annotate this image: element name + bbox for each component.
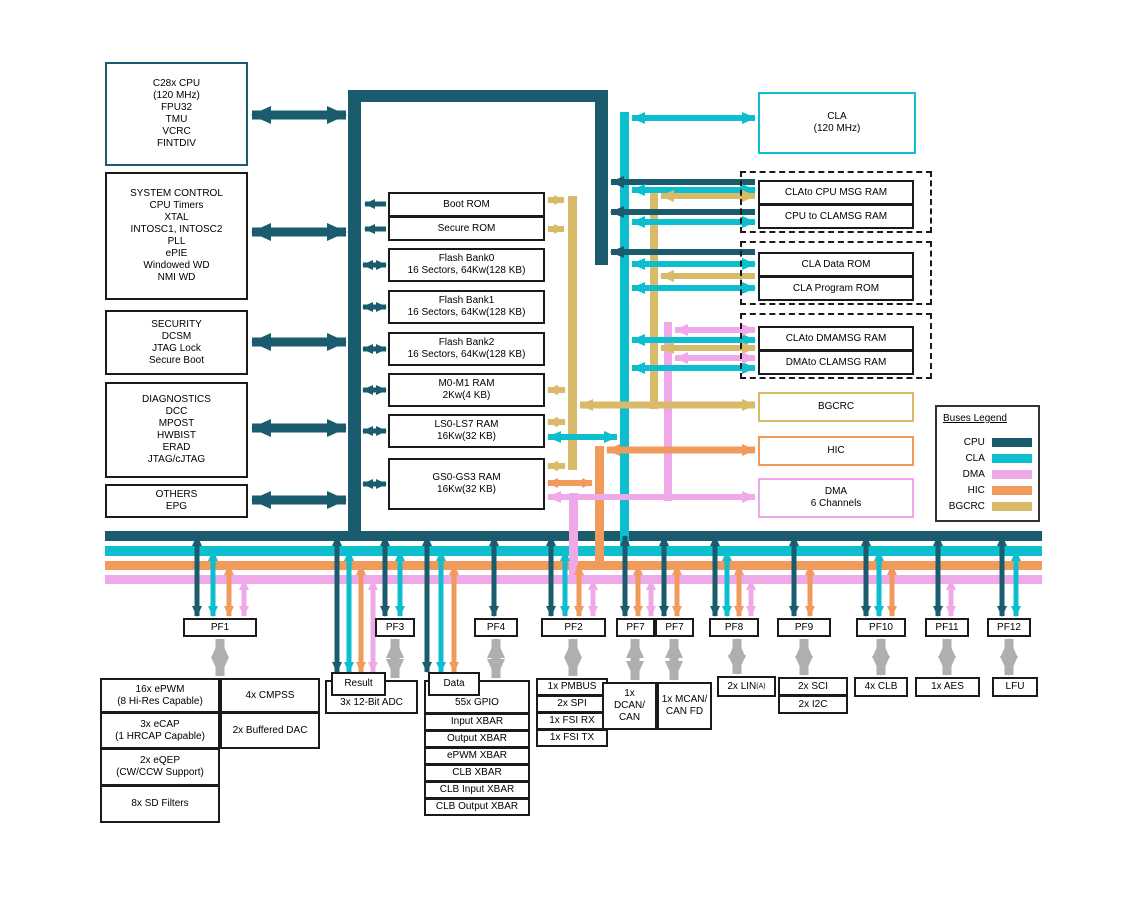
block-flash-bank2: Flash Bank2 16 Sectors, 64Kw(128 KB) bbox=[388, 332, 545, 366]
block-m0-m1-ram: M0-M1 RAM 2Kw(4 KB) bbox=[388, 373, 545, 407]
block-flash-bank0: Flash Bank0 16 Sectors, 64Kw(128 KB) bbox=[388, 248, 545, 282]
pf7a-box: PF7 bbox=[616, 618, 655, 637]
buses-legend: Buses Legend CPU CLA DMA HIC BGCRC bbox=[935, 405, 1040, 522]
legend-row-cla: CLA bbox=[943, 450, 1032, 466]
block-bgcrc: BGCRC bbox=[758, 392, 914, 422]
dma-bus-swatch bbox=[992, 470, 1032, 479]
cla-bus-segment bbox=[620, 112, 629, 556]
block-mcan: 1x MCAN/ CAN FD bbox=[657, 682, 712, 730]
block-eqep: 2x eQEP (CW/CCW Support) bbox=[100, 748, 220, 786]
block-cla: CLA (120 MHz) bbox=[758, 92, 916, 154]
block-security: SECURITY DCSM JTAG Lock Secure Boot bbox=[105, 310, 248, 375]
block-lfu: LFU bbox=[992, 677, 1038, 697]
block-cla-program-rom: CLA Program ROM bbox=[758, 276, 914, 301]
block-gpio-data: Data bbox=[428, 672, 480, 696]
pf2-box: PF2 bbox=[541, 618, 606, 637]
bgcrc-bus-segment bbox=[568, 196, 577, 470]
block-fsi-tx: 1x FSI TX bbox=[536, 729, 608, 747]
block-clb-output-xbar: CLB Output XBAR bbox=[424, 798, 530, 816]
block-ecap: 3x eCAP (1 HRCAP Capable) bbox=[100, 712, 220, 749]
block-cla-data-rom: CLA Data ROM bbox=[758, 252, 914, 277]
legend-row-hic: HIC bbox=[943, 482, 1032, 498]
pf4-box: PF4 bbox=[474, 618, 518, 637]
pf8-box: PF8 bbox=[709, 618, 759, 637]
pf12-box: PF12 bbox=[987, 618, 1031, 637]
cpu-bus-swatch bbox=[992, 438, 1032, 447]
cpu-bus-segment bbox=[348, 90, 361, 541]
block-ls0-ls7-ram: LS0-LS7 RAM 16Kw(32 KB) bbox=[388, 414, 545, 448]
pf1-box: PF1 bbox=[183, 618, 257, 637]
pf9-box: PF9 bbox=[777, 618, 831, 637]
soc-block-diagram: C28x CPU (120 MHz) FPU32 TMU VCRC FINTDI… bbox=[0, 0, 1122, 900]
block-clb-xbar: CLB XBAR bbox=[424, 764, 530, 782]
block-cla-to-cpu-msg-ram: CLAto CPU MSG RAM bbox=[758, 180, 914, 205]
block-output-xbar: Output XBAR bbox=[424, 730, 530, 748]
block-spi: 2x SPI bbox=[536, 695, 608, 713]
block-buffered-dac: 2x Buffered DAC bbox=[220, 712, 320, 749]
block-cla-to-dma-msg-ram: CLAto DMAMSG RAM bbox=[758, 326, 914, 351]
hic-bus-segment bbox=[595, 446, 604, 570]
block-lin: 2x LIN(A) bbox=[717, 676, 776, 697]
block-dcan: 1x DCAN/ CAN bbox=[602, 682, 657, 730]
block-adc-result: Result bbox=[331, 672, 386, 696]
block-aes: 1x AES bbox=[915, 677, 980, 697]
block-sd-filters: 8x SD Filters bbox=[100, 785, 220, 823]
block-flash-bank1: Flash Bank1 16 Sectors, 64Kw(128 KB) bbox=[388, 290, 545, 324]
pf3-box: PF3 bbox=[375, 618, 415, 637]
block-diagnostics: DIAGNOSTICS DCC MPOST HWBIST ERAD JTAG/c… bbox=[105, 382, 248, 478]
block-boot-rom: Boot ROM bbox=[388, 192, 545, 217]
block-gs0-gs3-ram: GS0-GS3 RAM 16Kw(32 KB) bbox=[388, 458, 545, 510]
block-fsi-rx: 1x FSI RX bbox=[536, 712, 608, 730]
block-clb-input-xbar: CLB Input XBAR bbox=[424, 781, 530, 799]
buses-legend-title: Buses Legend bbox=[943, 413, 1032, 424]
block-dma: DMA 6 Channels bbox=[758, 478, 914, 518]
block-others: OTHERS EPG bbox=[105, 484, 248, 518]
block-epwm: 16x ePWM (8 Hi-Res Capable) bbox=[100, 678, 220, 713]
block-pmbus: 1x PMBUS bbox=[536, 678, 608, 696]
pf11-box: PF11 bbox=[925, 618, 969, 637]
pf10-box: PF10 bbox=[856, 618, 906, 637]
block-secure-rom: Secure ROM bbox=[388, 216, 545, 241]
cla-bus-swatch bbox=[992, 454, 1032, 463]
block-dma-to-cla-msg-ram: DMAto CLAMSG RAM bbox=[758, 350, 914, 375]
pf7b-box: PF7 bbox=[655, 618, 694, 637]
block-epwm-xbar: ePWM XBAR bbox=[424, 747, 530, 765]
block-hic: HIC bbox=[758, 436, 914, 466]
bgcrc-bus-swatch bbox=[992, 502, 1032, 511]
block-i2c: 2x I2C bbox=[778, 695, 848, 714]
legend-row-dma: DMA bbox=[943, 466, 1032, 482]
legend-row-bgcrc: BGCRC bbox=[943, 498, 1032, 514]
block-input-xbar: Input XBAR bbox=[424, 713, 530, 731]
block-cpu-to-cla-msg-ram: CPU to CLAMSG RAM bbox=[758, 204, 914, 229]
hic-bus-swatch bbox=[992, 486, 1032, 495]
cpu-bus-segment bbox=[595, 90, 608, 265]
cpu-bus-segment bbox=[348, 90, 608, 102]
block-sci: 2x SCI bbox=[778, 677, 848, 696]
block-c28x-cpu: C28x CPU (120 MHz) FPU32 TMU VCRC FINTDI… bbox=[105, 62, 248, 166]
block-clb: 4x CLB bbox=[854, 677, 908, 697]
legend-row-cpu: CPU bbox=[943, 434, 1032, 450]
block-cmpss: 4x CMPSS bbox=[220, 678, 320, 713]
block-system-control: SYSTEM CONTROL CPU Timers XTAL INTOSC1, … bbox=[105, 172, 248, 300]
